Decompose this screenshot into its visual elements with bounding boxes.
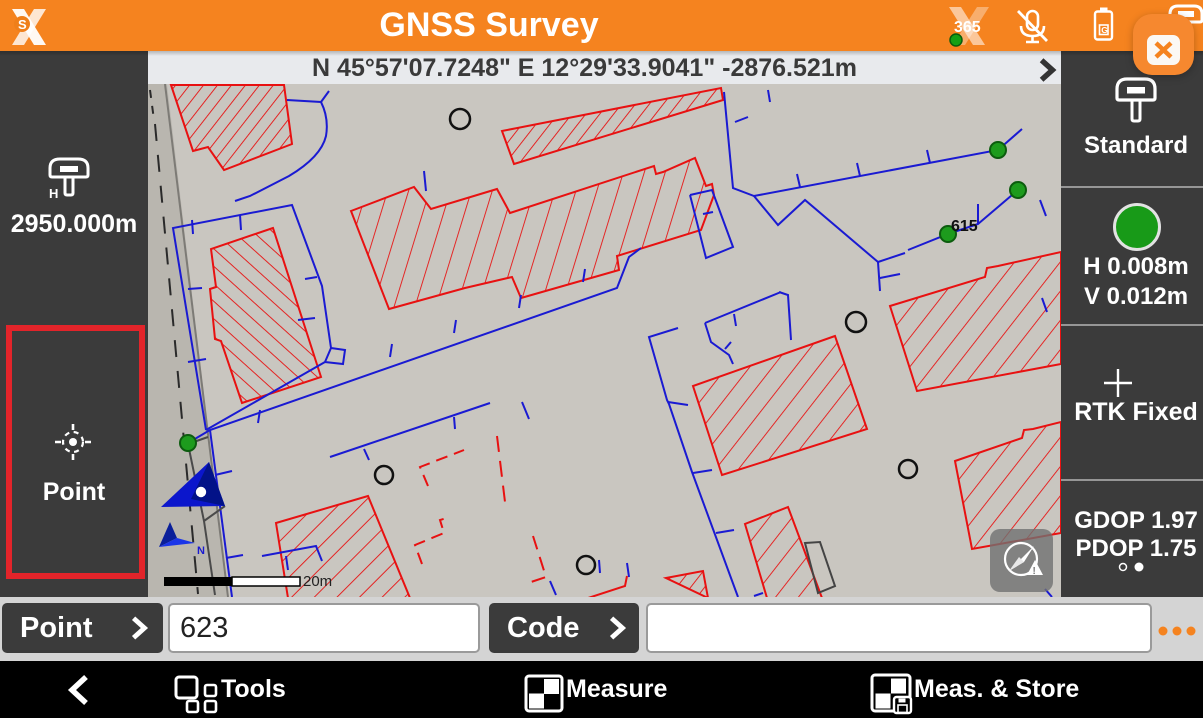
svg-text:G: G [1101,25,1108,35]
svg-text:615: 615 [951,218,978,235]
svg-text:!: ! [1033,566,1036,577]
svg-text:H: H [49,186,58,201]
svg-text:S: S [18,17,27,32]
svg-text:365: 365 [954,19,981,36]
svg-text:N: N [197,545,205,557]
svg-text:20m: 20m [303,573,332,590]
